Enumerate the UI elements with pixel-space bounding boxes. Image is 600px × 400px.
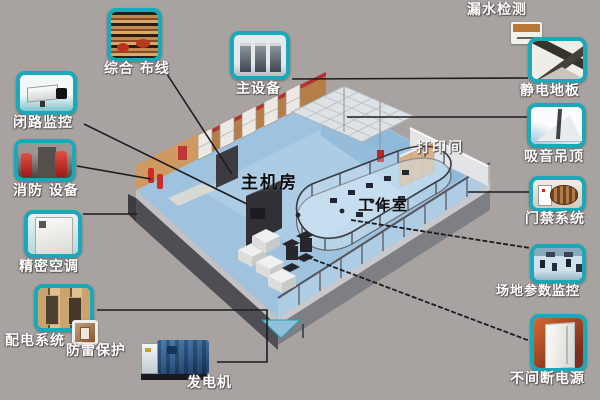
generator-engine-image <box>157 340 209 374</box>
acoustic-ceiling-thumbnail <box>527 103 586 148</box>
leak-detection-label: 漏水检测 <box>467 3 527 18</box>
work-room-label: 工作室 <box>358 194 409 215</box>
ups-label: 不间断电源 <box>510 372 585 387</box>
fire-extinguisher-image <box>21 153 32 177</box>
ups-tower-image <box>545 322 575 370</box>
lightning-protection-label: 防雷保护 <box>66 344 126 359</box>
generator-label: 发电机 <box>187 376 232 391</box>
ups-thumbnail <box>530 314 587 372</box>
antistatic-floor-label: 静电地板 <box>520 84 580 99</box>
coil-image <box>550 185 578 205</box>
cctv-thumbnail <box>16 71 77 115</box>
cabling-rack-image <box>111 12 158 58</box>
connector-main-equipment-floor <box>292 78 528 79</box>
power-distribution-label: 配电系统 <box>5 334 65 349</box>
fire-equipment-label: 消防 设备 <box>13 184 79 199</box>
cctv-label: 闭路监控 <box>13 116 73 131</box>
print-room-label: 打印间 <box>416 137 464 157</box>
lightning-protection-thumbnail <box>72 320 98 345</box>
connector-cctv <box>84 124 247 204</box>
fire-equipment-thumbnail <box>14 139 76 182</box>
site-monitoring-thumbnail <box>530 244 586 284</box>
site-monitoring-label: 场地参数监控 <box>496 285 580 299</box>
main-equipment-label: 主设备 <box>236 82 281 97</box>
antistatic-floor-thumbnail <box>528 37 587 83</box>
connector-site-monitoring <box>351 220 530 248</box>
acoustic-ceiling-label: 吸音吊顶 <box>524 150 584 165</box>
precision-ac-thumbnail <box>24 210 82 258</box>
machine-room-infographic: 综合 布线 闭路监控 消防 设备 精密空调 配电系统 防雷保护 发电机 主设备 … <box>0 0 600 400</box>
access-control-label: 门禁系统 <box>525 212 585 227</box>
access-control-thumbnail <box>529 176 586 212</box>
main-equipment-thumbnail <box>230 31 290 80</box>
equipment-units-image <box>240 43 251 72</box>
connector-cabling <box>163 68 232 174</box>
cabling-label: 综合 布线 <box>104 62 170 77</box>
precision-ac-label: 精密空调 <box>19 260 79 275</box>
cabling-thumbnail <box>107 8 162 62</box>
connector-fire <box>77 166 151 179</box>
main-room-label: 主机房 <box>241 168 298 193</box>
